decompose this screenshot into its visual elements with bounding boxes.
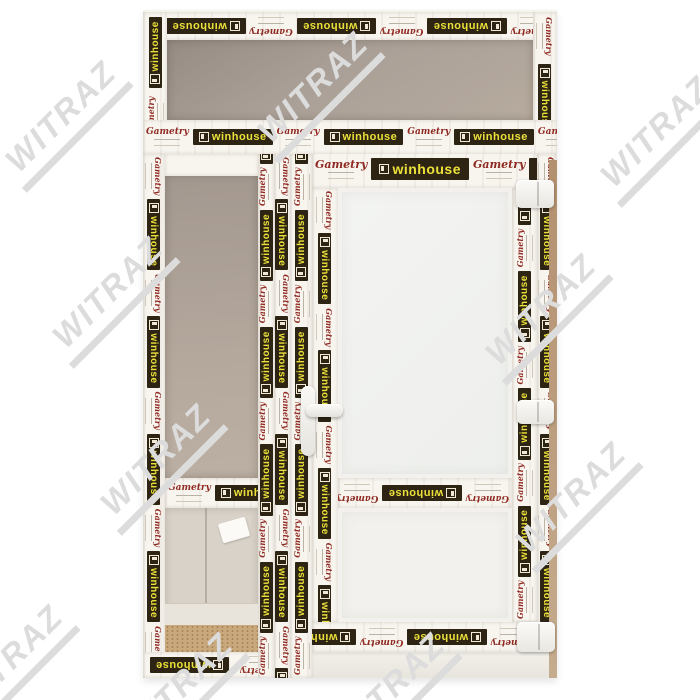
gametry-label: Gametry — [360, 628, 403, 646]
hinge-top — [516, 180, 554, 208]
winhouse-logo-icon — [261, 154, 271, 160]
gametry-label: Gametry — [258, 285, 274, 323]
fine-print-lines — [416, 139, 442, 146]
winhouse-logo-icon — [149, 203, 159, 213]
winhouse-logo-icon — [199, 132, 209, 142]
gametry-label: Gametry — [407, 128, 450, 146]
door-bottom-rail-tape: GametrywinhouseGametrywinhouse — [312, 622, 537, 652]
bottom-frame — [312, 652, 557, 678]
winhouse-logo-icon — [296, 267, 306, 277]
winhouse-logo-icon — [261, 502, 271, 512]
winhouse-logo-icon — [296, 154, 306, 160]
gametry-label: Gametry — [277, 128, 320, 146]
winhouse-logo-icon — [330, 132, 340, 142]
winhouse-logo-icon — [149, 555, 159, 565]
winhouse-logo-icon — [520, 446, 530, 456]
winhouse-label: winhouse — [319, 468, 332, 539]
gametry-label: Gametry — [516, 346, 533, 384]
gametry-label: Gametry — [380, 17, 423, 35]
winhouse-logo-icon — [320, 237, 330, 247]
winhouse-logo-icon — [150, 74, 160, 84]
winhouse-label: winhouse — [260, 154, 273, 164]
winhouse-label: winhouse — [260, 444, 273, 515]
gametry-label: Gametry — [537, 17, 554, 55]
fine-print-lines — [526, 352, 533, 378]
winhouse-label: winhouse — [371, 158, 469, 180]
winhouse-logo-icon — [340, 632, 350, 642]
winhouse-label: winhouse — [260, 327, 273, 398]
interior-carpet — [165, 625, 258, 652]
winhouse-label: winhouse — [324, 129, 404, 145]
winhouse-logo-icon — [277, 438, 287, 448]
gametry-label: Gametry — [466, 484, 509, 502]
winhouse-logo-icon — [540, 68, 550, 78]
gametry-label: Gametry — [250, 17, 293, 35]
winhouse-label: winhouse — [382, 485, 462, 501]
mullion-tape-right: GametrywinhouseGametrywinhouseGametrywin… — [274, 154, 290, 678]
winhouse-logo-icon — [277, 203, 287, 213]
mullion-tape-left: GametrywinhouseGametrywinhouseGametrywin… — [258, 154, 274, 678]
hinge-middle — [517, 400, 554, 424]
gametry-label: Gametry — [317, 543, 334, 581]
door-top-rail-tape: GametrywinhouseGametrywinhouse — [312, 150, 537, 188]
fine-print-lines — [317, 314, 324, 340]
winhouse-label: winhouse — [276, 199, 289, 270]
winhouse-label: winhouse — [295, 210, 308, 281]
winhouse-label: winhouse — [297, 18, 377, 34]
fine-print-lines — [303, 291, 310, 317]
fine-print-lines — [526, 235, 533, 261]
fine-print-lines — [274, 280, 281, 306]
winhouse-logo-icon — [491, 21, 501, 31]
winhouse-label: winhouse — [407, 629, 487, 645]
gametry-label: Gametry — [146, 128, 189, 146]
gametry-label: Gametry — [338, 484, 378, 502]
fine-print-lines — [146, 163, 153, 189]
winhouse-label: winhouse — [276, 551, 289, 622]
winhouse-logo-icon — [320, 354, 330, 364]
left-frame-tape: GametrywinhouseGametrywinhouseGametrywin… — [143, 154, 165, 678]
winhouse-logo-icon — [296, 619, 306, 629]
fine-print-lines — [258, 17, 284, 24]
gametry-label: Gametry — [516, 464, 533, 502]
winhouse-logo-icon — [149, 438, 159, 448]
winhouse-label: winhouse — [148, 316, 161, 387]
fine-print-lines — [475, 484, 501, 491]
hinge-bottom — [517, 622, 555, 652]
gametry-label: Gametry — [258, 637, 274, 675]
witraz-watermark: WITRAZ — [0, 51, 134, 193]
winhouse-label: winhouse — [150, 657, 230, 673]
transom-top-frame-tape: GametrywinhouseGametrywinhouseGametrywin… — [143, 12, 557, 40]
winhouse-logo-icon — [221, 488, 231, 498]
winhouse-label: winhouse — [518, 271, 531, 342]
winhouse-label: winhouse — [276, 668, 289, 678]
winhouse-logo-icon — [460, 132, 470, 142]
winhouse-label: winhouse — [295, 154, 308, 164]
gametry-label: Gametry — [516, 581, 533, 619]
fine-print-lines — [274, 632, 281, 658]
main-top-frame-tape: GametrywinhouseGametrywinhouseGametrywin… — [143, 120, 557, 154]
winhouse-logo-icon — [360, 21, 370, 31]
fine-print-lines — [285, 139, 311, 146]
gametry-label: Gametry — [293, 168, 310, 206]
winhouse-label: winhouse — [215, 485, 258, 501]
fine-print-lines — [317, 549, 324, 575]
gametry-label: Gametry — [473, 159, 525, 179]
winhouse-logo-icon — [230, 21, 240, 31]
gametry-label: Gametry — [317, 426, 334, 464]
gametry-label: Gametry — [274, 157, 290, 195]
door-leaf: GametrywinhouseGametrywinhouse Gametrywi… — [312, 150, 537, 652]
fine-print-lines — [539, 280, 546, 306]
winhouse-label: winhouse — [149, 17, 162, 88]
gametry-label: Gametry — [274, 392, 290, 430]
winhouse-logo-icon — [149, 320, 159, 330]
winhouse-label: winhouse — [276, 434, 289, 505]
winhouse-logo-icon — [446, 488, 456, 498]
winhouse-logo-icon — [277, 555, 287, 565]
fine-print-lines — [486, 172, 512, 179]
winhouse-label: winhouse — [454, 129, 534, 145]
winhouse-label: winhouse — [276, 316, 289, 387]
winhouse-logo-icon — [261, 267, 271, 277]
gametry-label: Gametry — [274, 626, 290, 664]
fine-print-lines — [546, 139, 557, 146]
gametry-label: Gametry — [293, 637, 310, 675]
gametry-label: Gametry — [258, 168, 274, 206]
winhouse-label: winhouse — [319, 585, 332, 622]
winhouse-label: winhouse — [166, 18, 246, 34]
winhouse-logo-icon — [213, 660, 223, 670]
gametry-label: Gametry — [146, 157, 163, 195]
fine-print-lines — [317, 432, 324, 458]
interior-wall-corner — [205, 508, 207, 605]
door-handle-lever — [306, 404, 343, 417]
winhouse-label: winhouse — [260, 562, 273, 633]
gametry-label: Gametry — [274, 274, 290, 312]
winhouse-logo-icon — [520, 563, 530, 573]
winhouse-label: winhouse — [260, 210, 273, 281]
fine-print-lines — [303, 174, 310, 200]
winhouse-logo-icon — [277, 672, 287, 678]
gametry-label: Gametry — [317, 308, 334, 346]
gametry-label: Gametry — [315, 159, 367, 179]
winhouse-logo-icon — [261, 384, 271, 394]
winhouse-label: winhouse — [148, 434, 161, 505]
fine-print-lines — [154, 139, 180, 146]
winhouse-logo-icon — [379, 164, 389, 174]
door-lower-panel — [342, 512, 508, 618]
gametry-label: Gametry — [146, 274, 163, 312]
interior-baseboard — [165, 603, 258, 626]
winhouse-logo-icon — [320, 472, 330, 482]
sidelight-top-frame — [165, 154, 258, 176]
fine-print-lines — [317, 197, 324, 223]
fine-print-lines — [537, 23, 544, 49]
witraz-watermark: WITRAZ — [587, 66, 700, 208]
fine-print-lines — [146, 515, 153, 541]
fine-print-lines — [176, 495, 202, 502]
fine-print-lines — [303, 643, 310, 669]
fine-print-lines — [274, 398, 281, 424]
transom-glass — [167, 40, 533, 120]
winhouse-label: winhouse — [148, 199, 161, 270]
gametry-label: Gametry — [274, 509, 290, 547]
winhouse-logo-icon — [520, 328, 530, 338]
sidelight-mid-rail-tape: Gametrywinhouse — [165, 478, 258, 508]
winhouse-logo-icon — [320, 589, 330, 599]
fine-print-lines — [539, 515, 546, 541]
fine-print-lines — [274, 163, 281, 189]
gametry-label: Gametry — [146, 509, 163, 547]
gametry-label: Gametry — [146, 392, 163, 430]
gametry-label: Gametry — [293, 520, 310, 558]
winhouse-label: winhouse — [295, 562, 308, 633]
winhouse-logo-icon — [471, 632, 481, 642]
fine-print-lines — [369, 628, 395, 635]
winhouse-logo-icon — [296, 502, 306, 512]
gametry-label: Gametry — [258, 402, 274, 440]
winhouse-label: winhouse — [518, 506, 531, 577]
winhouse-logo-icon — [520, 211, 530, 221]
gametry-label: Gametry — [317, 191, 334, 229]
fine-print-lines — [526, 587, 533, 613]
fine-print-lines — [526, 470, 533, 496]
winhouse-label: winhouse — [319, 233, 332, 304]
fine-print-lines — [389, 17, 415, 24]
winhouse-label: winhouse — [529, 158, 537, 180]
winhouse-label: winhouse — [193, 129, 273, 145]
fine-print-lines — [274, 515, 281, 541]
gametry-label: Gametry — [516, 229, 533, 267]
fine-print-lines — [146, 280, 153, 306]
winhouse-label: winhouse — [148, 551, 161, 622]
door-upper-panel — [342, 192, 508, 474]
winhouse-label: winhouse — [312, 629, 356, 645]
winhouse-logo-icon — [261, 619, 271, 629]
fine-print-lines — [344, 484, 370, 491]
gametry-label: Gametry — [168, 484, 211, 502]
fine-print-lines — [146, 398, 153, 424]
gametry-label: Gametry — [538, 128, 557, 146]
gametry-label: Gametry — [258, 520, 274, 558]
door-window-unit: GametrywinhouseGametrywinhouseGametrywin… — [143, 10, 557, 678]
glass-sticker — [218, 517, 250, 544]
witraz-watermark: WITRAZ — [0, 595, 81, 700]
sidelight-upper-glass — [165, 174, 258, 478]
gametry-label: Gametry — [293, 285, 310, 323]
door-handle-plate — [301, 386, 315, 456]
winhouse-label: winhouse — [427, 18, 507, 34]
door-mid-rail-tape: GametrywinhouseGametrywinhouse — [338, 478, 512, 508]
fine-print-lines — [328, 172, 354, 179]
fine-print-lines — [303, 526, 310, 552]
sidelight-lower-glass — [165, 508, 258, 652]
winhouse-logo-icon — [277, 320, 287, 330]
product-photo: GametrywinhouseGametrywinhouseGametrywin… — [0, 0, 700, 700]
